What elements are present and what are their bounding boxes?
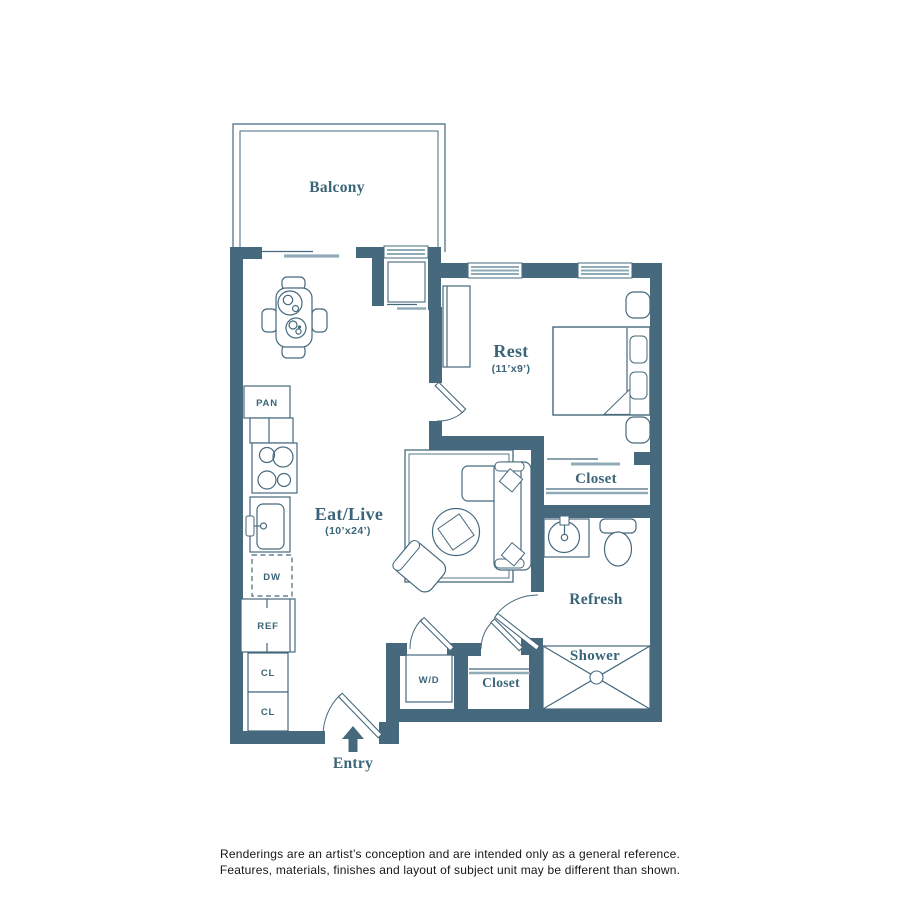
nightstand-bottom [626, 417, 650, 443]
window-shaft [384, 246, 428, 258]
wall-bedroom-closet-divider [429, 436, 533, 450]
refrigerator-label: REF [257, 621, 278, 632]
wall-closet-slider-chunk [634, 452, 650, 465]
bedroom-closet-sliding-door [547, 459, 620, 464]
bed-pillow-top [630, 336, 647, 363]
dining-set [262, 277, 327, 358]
bed [553, 327, 650, 415]
bed-pillow-bottom [630, 372, 647, 399]
disclaimer: Renderings are an artist’s conception an… [0, 846, 900, 878]
counter-segment [250, 418, 293, 443]
disclaimer-line-2: Features, materials, finishes and layout… [0, 862, 900, 878]
wall-closet-bottom [531, 505, 650, 518]
washer-dryer-label: W/D [419, 675, 440, 686]
window-bedroom-1 [468, 263, 522, 278]
wall-hall-closet-top-left [468, 643, 481, 656]
wall-top-a [230, 247, 262, 259]
closet-lower-label: CL [261, 707, 275, 718]
window-bedroom-2 [578, 263, 632, 278]
entry-arrow-icon [342, 726, 364, 752]
floorplan: Balcony Rest (11’x9’) Eat/Live (10’x24’)… [0, 0, 900, 900]
entry-label: Entry [333, 755, 373, 772]
balcony-label: Balcony [309, 179, 365, 196]
kitchen-sink [246, 497, 290, 552]
coffee-table [433, 509, 480, 556]
toilet [600, 519, 636, 566]
wall-hall-closet-right [529, 645, 543, 712]
shower-label: Shower [570, 648, 620, 664]
refresh-label: Refresh [569, 591, 623, 608]
rest-dims: (11’x9’) [492, 363, 531, 375]
eat-live-dims: (10’x24’) [325, 525, 371, 537]
pantry-label: PAN [256, 398, 278, 409]
bedroom-door [435, 382, 465, 421]
bedroom-closet-label: Closet [575, 471, 617, 487]
wall-bedroom-top-2 [522, 263, 578, 278]
living-area [391, 450, 531, 596]
shaft-box [388, 262, 425, 302]
eat-live-label: Eat/Live [315, 504, 383, 524]
stove [252, 443, 297, 493]
hall-closet-label: Closet [482, 675, 520, 690]
balcony-sliding-door [258, 252, 339, 257]
wall-right [650, 263, 662, 722]
wall-bedroom-top-1 [438, 263, 468, 278]
wall-entry-step [379, 722, 399, 744]
nightstand-top [626, 292, 650, 318]
shaft-sliding-panel [387, 305, 426, 309]
shower-drain [590, 671, 603, 684]
washer-dryer-door [410, 618, 454, 651]
bedroom [443, 286, 650, 443]
wall-shaft-right [428, 247, 441, 310]
wall-wd-closet-divider [454, 643, 468, 712]
floorplan-page: Balcony Rest (11’x9’) Eat/Live (10’x24’)… [0, 0, 900, 900]
dining-chair-right [312, 309, 327, 332]
wall-shaft-left [372, 247, 384, 306]
wall-bedroom-left-upper [429, 307, 442, 383]
disclaimer-line-1: Renderings are an artist’s conception an… [0, 846, 900, 862]
dining-chair-left [262, 309, 277, 332]
dresser [443, 286, 470, 367]
closet-upper-label: CL [261, 668, 275, 679]
hall-closet-rod [469, 669, 530, 673]
vanity-sink [544, 516, 589, 557]
wall-wd-top-left [386, 643, 407, 656]
kitchen [241, 386, 297, 731]
bedroom-closet-rod [546, 489, 648, 493]
wall-entry-bottom [230, 731, 325, 744]
wall-left [230, 247, 243, 744]
rest-label: Rest [493, 341, 528, 361]
wall-hall-bottom [386, 709, 662, 722]
dishwasher-label: DW [263, 572, 280, 583]
bathroom [543, 516, 650, 709]
